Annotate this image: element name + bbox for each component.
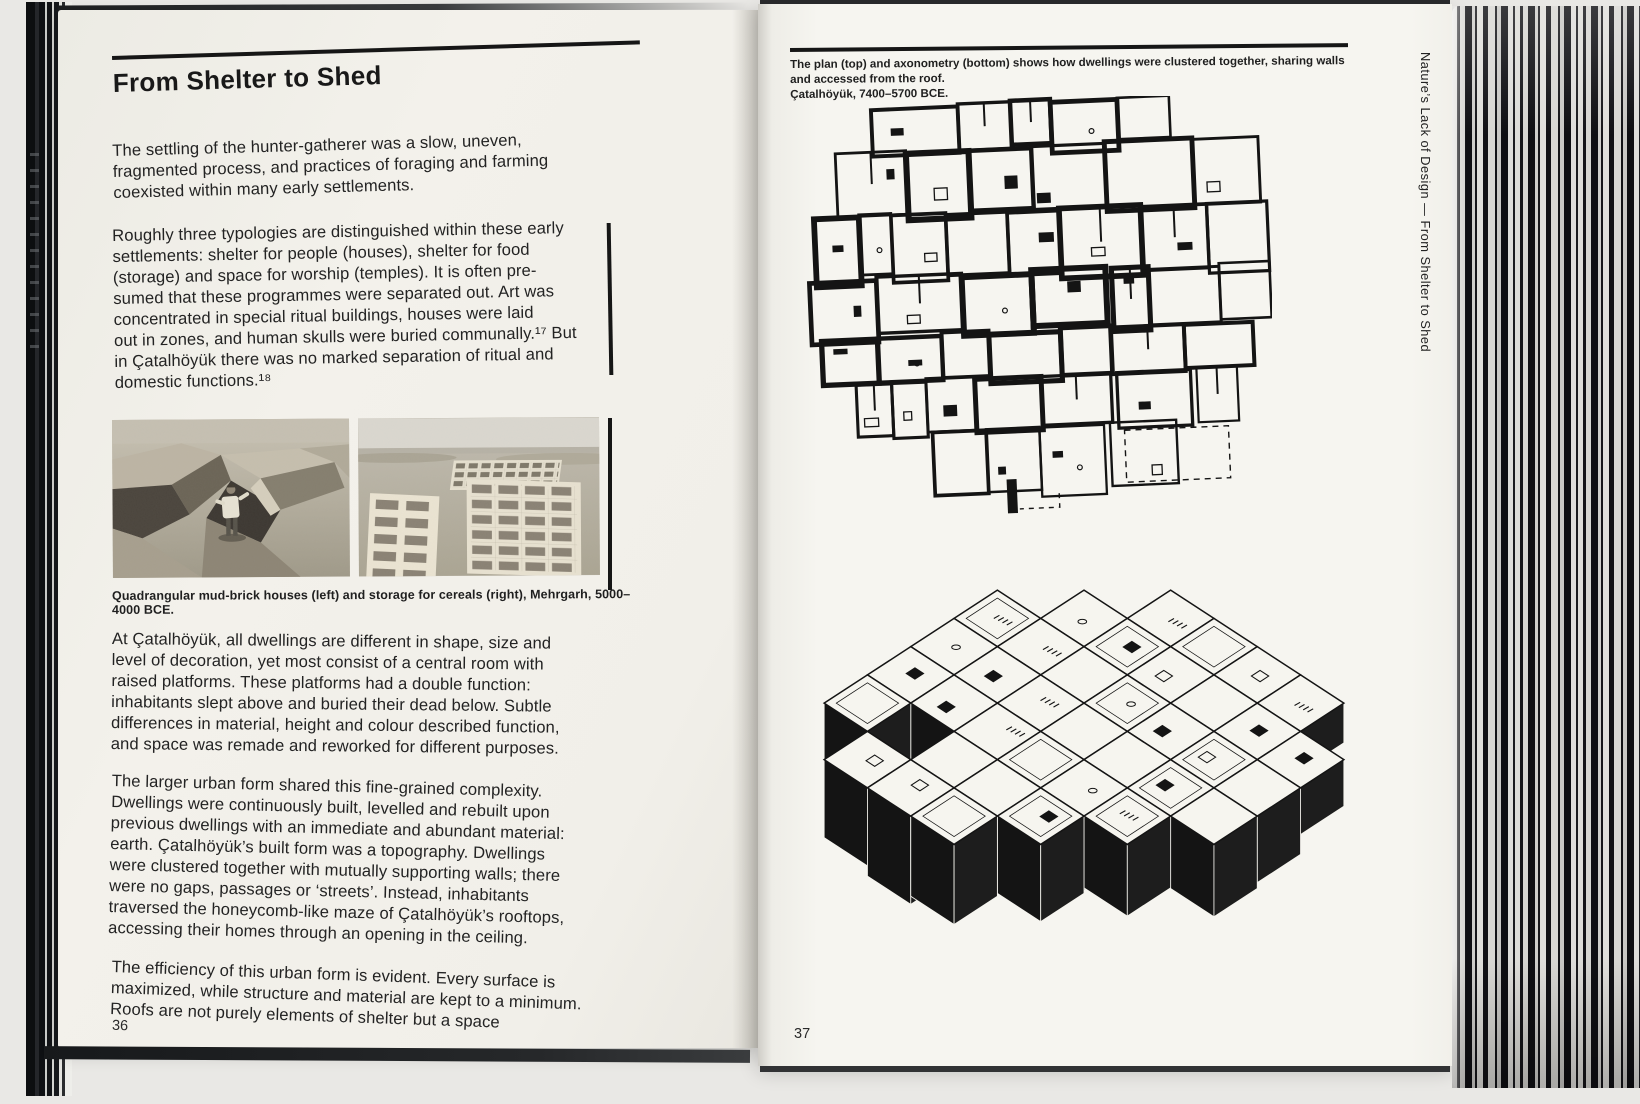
spine-edge-marks [30,140,39,360]
illustration-caption: The plan (top) and axonometry (bottom) s… [790,53,1360,102]
excavation-photo [112,419,350,578]
cover-bottom-edge-left [44,1046,750,1063]
plan-drawing [800,96,1272,516]
margin-marker-2 [608,418,612,590]
photo-caption: Quadrangular mud-brick houses (left) and… [112,587,632,617]
paragraph-4: The larger urban form shared this fine-g… [108,770,640,951]
paragraph-3: At Çatalhöyük, all dwellings are differe… [111,628,640,760]
paragraph-1: The settling of the hunter-gatherer was … [112,126,641,203]
page-title: From Shelter to Shed [112,52,641,99]
page-number-right: 37 [794,1026,810,1042]
cover-bottom-edge-right [760,1066,1450,1072]
page-edge-stripes [1452,6,1640,1088]
paragraph-2: Roughly three typologies are distinguish… [112,216,643,393]
paragraph-5: The efficiency of this urban form is evi… [110,956,640,1037]
right-page: The plan (top) and axonometry (bottom) s… [758,4,1452,1066]
left-page: From Shelter to Shed The settling of the… [58,10,758,1048]
axonometry-drawing [778,496,1390,948]
photo-pair [112,417,603,578]
storage-photo [358,417,600,576]
running-header-vertical: Nature’s Lack of Design — From Shelter t… [1418,52,1433,392]
page-number-left: 36 [112,1018,129,1035]
caption-rule [790,43,1348,52]
book-spread: From Shelter to Shed The settling of the… [0,0,1640,1104]
